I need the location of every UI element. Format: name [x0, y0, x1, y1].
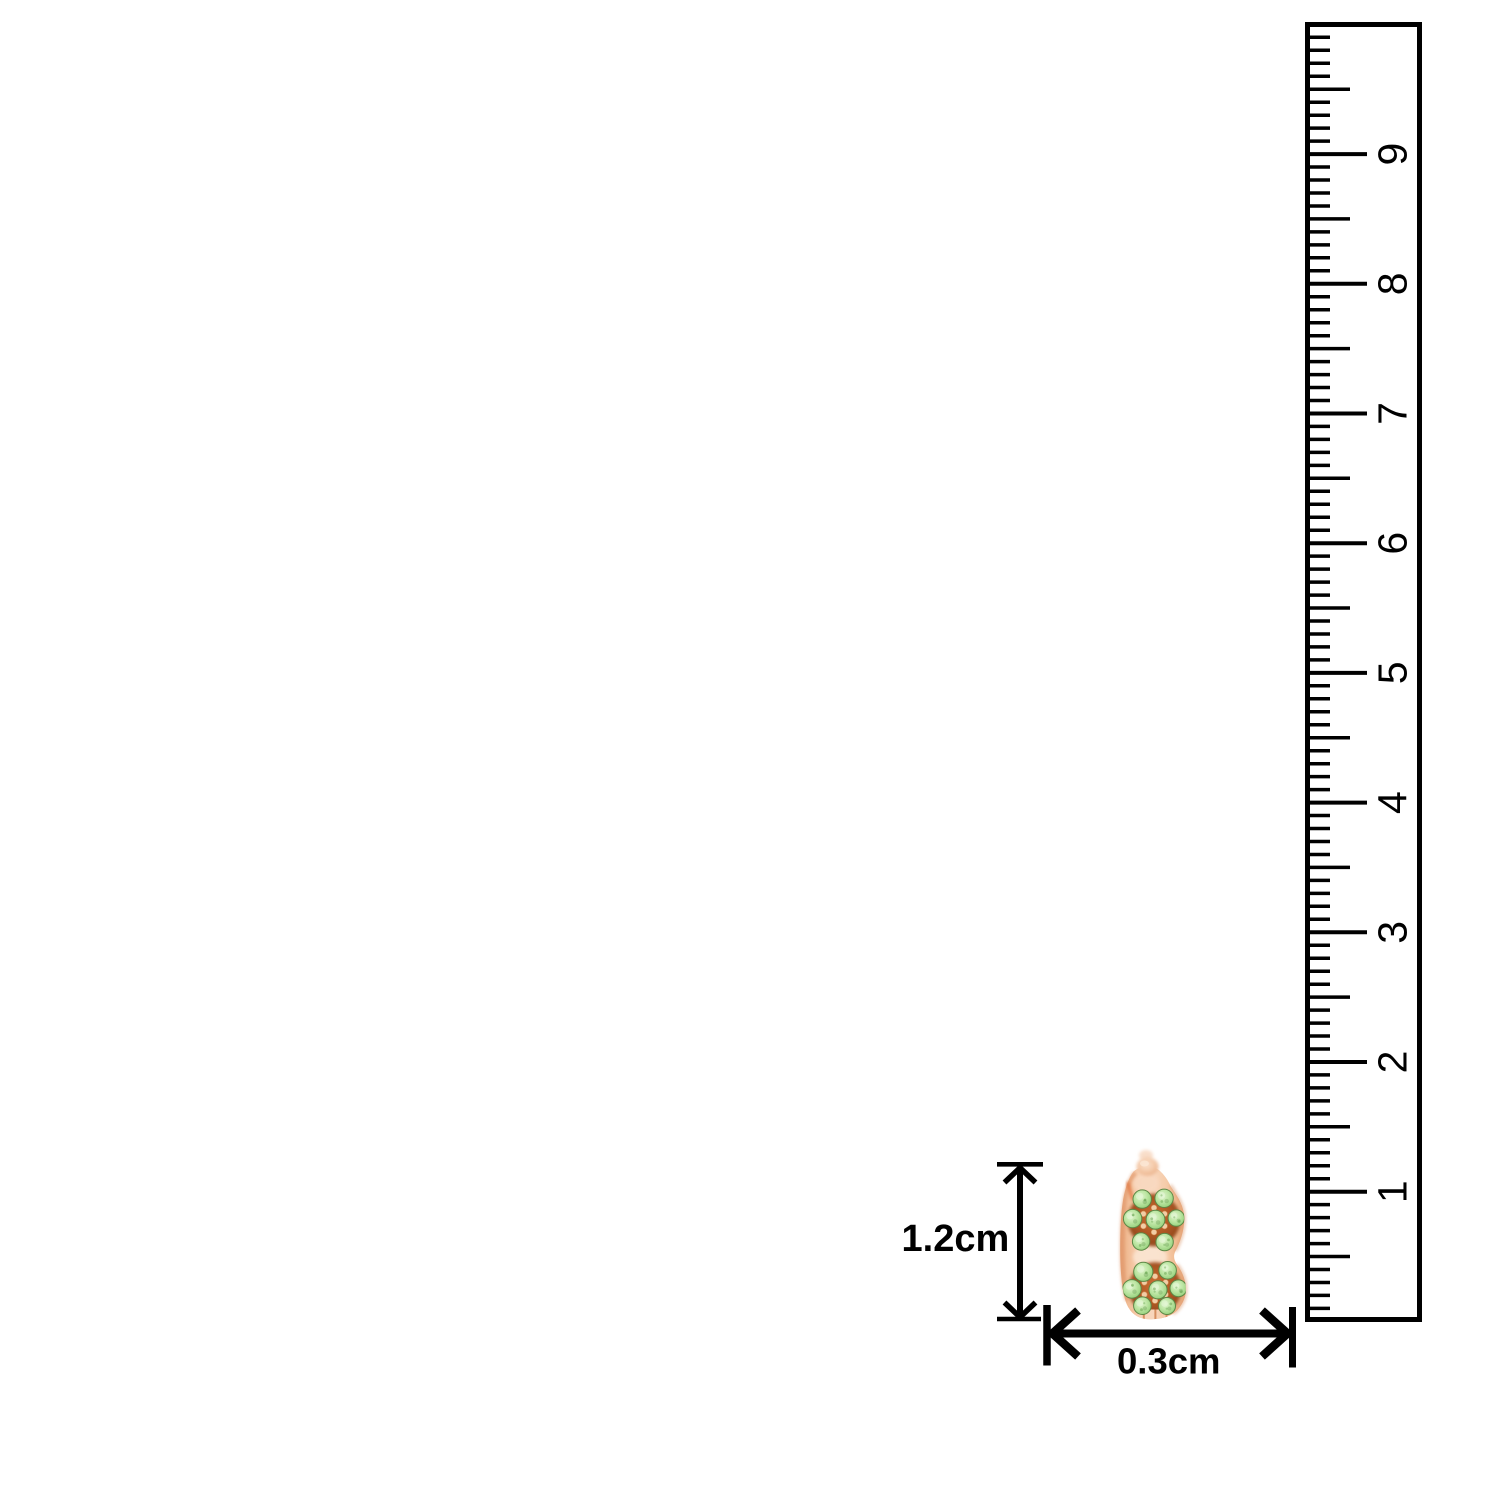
- svg-text:8: 8: [1370, 272, 1416, 295]
- svg-text:0.3cm: 0.3cm: [1117, 1341, 1221, 1382]
- svg-text:7: 7: [1370, 402, 1416, 425]
- svg-text:9: 9: [1370, 143, 1416, 166]
- svg-text:3: 3: [1370, 921, 1416, 944]
- svg-text:5: 5: [1370, 661, 1416, 684]
- svg-text:6: 6: [1370, 532, 1416, 555]
- svg-text:1: 1: [1370, 1180, 1416, 1203]
- svg-text:1.2cm: 1.2cm: [902, 1218, 1010, 1260]
- svg-text:2: 2: [1370, 1051, 1416, 1074]
- svg-text:4: 4: [1370, 791, 1416, 814]
